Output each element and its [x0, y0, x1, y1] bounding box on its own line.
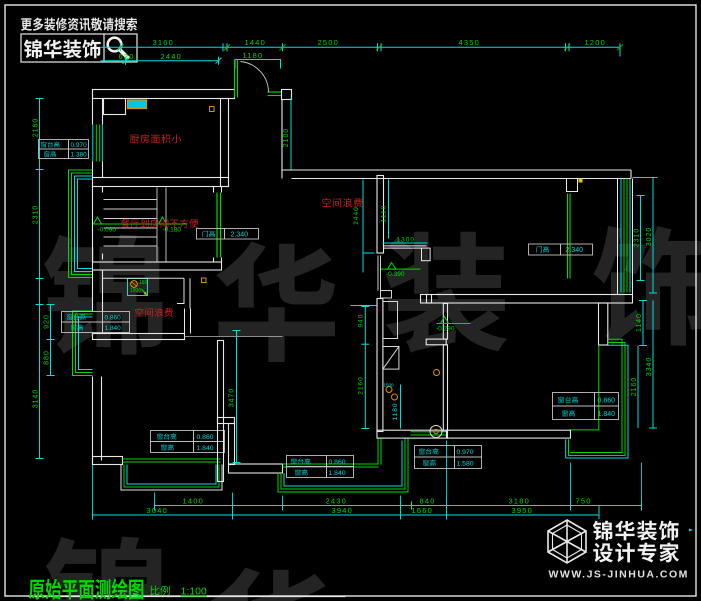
svg-text:WWW.JS-JINHUA.COM: WWW.JS-JINHUA.COM	[549, 569, 689, 581]
svg-text:1180: 1180	[243, 51, 264, 60]
svg-text:0.860: 0.860	[329, 459, 346, 466]
svg-text:3160: 3160	[153, 38, 175, 47]
svg-text:3140: 3140	[33, 389, 40, 409]
svg-text:1.840: 1.840	[105, 325, 122, 332]
svg-text:2160: 2160	[358, 376, 365, 394]
svg-text:3940: 3940	[332, 506, 354, 515]
svg-text:-0.290: -0.290	[436, 326, 455, 333]
svg-text:0.970: 0.970	[457, 449, 474, 456]
svg-text:4350: 4350	[459, 38, 481, 47]
svg-text:1140: 1140	[636, 313, 643, 332]
svg-text:180: 180	[139, 280, 148, 286]
svg-text:3950: 3950	[512, 506, 534, 515]
svg-text:3470: 3470	[229, 388, 236, 408]
svg-text:880: 880	[44, 350, 51, 365]
svg-text:2310: 2310	[33, 205, 40, 225]
svg-text:2440: 2440	[161, 52, 183, 61]
svg-text:2500: 2500	[318, 38, 340, 47]
svg-text:2440: 2440	[353, 206, 360, 224]
svg-text:2.340: 2.340	[231, 232, 249, 239]
svg-text:1.840: 1.840	[329, 470, 346, 477]
svg-text:1.380: 1.380	[71, 152, 88, 159]
svg-text:0.860: 0.860	[598, 398, 616, 405]
svg-text:0.860: 0.860	[197, 434, 214, 441]
svg-text:1.840: 1.840	[197, 445, 214, 452]
svg-text:-0.390: -0.390	[386, 271, 405, 278]
svg-text:-0.090: -0.090	[98, 227, 117, 234]
svg-text:940: 940	[358, 314, 365, 328]
svg-text:2310: 2310	[634, 228, 641, 248]
svg-text:2.340: 2.340	[566, 247, 584, 254]
svg-text:1.580: 1.580	[457, 461, 474, 468]
svg-text:1300: 1300	[397, 237, 415, 244]
svg-text:1110: 1110	[381, 205, 388, 223]
svg-text:3040: 3040	[147, 506, 169, 515]
svg-text:2160: 2160	[631, 377, 638, 397]
svg-text:1400: 1400	[183, 497, 205, 506]
svg-text:1180: 1180	[392, 403, 399, 421]
svg-text:920: 920	[44, 314, 51, 329]
svg-text:840: 840	[420, 497, 436, 506]
svg-text:2430: 2430	[326, 497, 348, 506]
svg-text:0.970: 0.970	[71, 142, 88, 149]
svg-text:1200: 1200	[585, 38, 607, 47]
svg-text:-0.180: -0.180	[163, 227, 182, 234]
svg-text:2160: 2160	[33, 118, 40, 138]
svg-text:1660: 1660	[412, 506, 434, 515]
svg-text:3340: 3340	[646, 357, 653, 377]
svg-text:0.860: 0.860	[105, 315, 122, 322]
svg-text:1500: 1500	[384, 383, 395, 388]
svg-text:1.840: 1.840	[598, 411, 616, 418]
svg-text:750: 750	[576, 497, 592, 506]
svg-text:3180: 3180	[509, 497, 531, 506]
svg-text:1440: 1440	[245, 38, 267, 47]
svg-text:3020: 3020	[646, 227, 653, 247]
svg-text:1900: 1900	[130, 288, 141, 294]
svg-text:1:100: 1:100	[181, 586, 207, 598]
svg-text:2100: 2100	[283, 128, 290, 148]
svg-text:620: 620	[119, 52, 135, 61]
